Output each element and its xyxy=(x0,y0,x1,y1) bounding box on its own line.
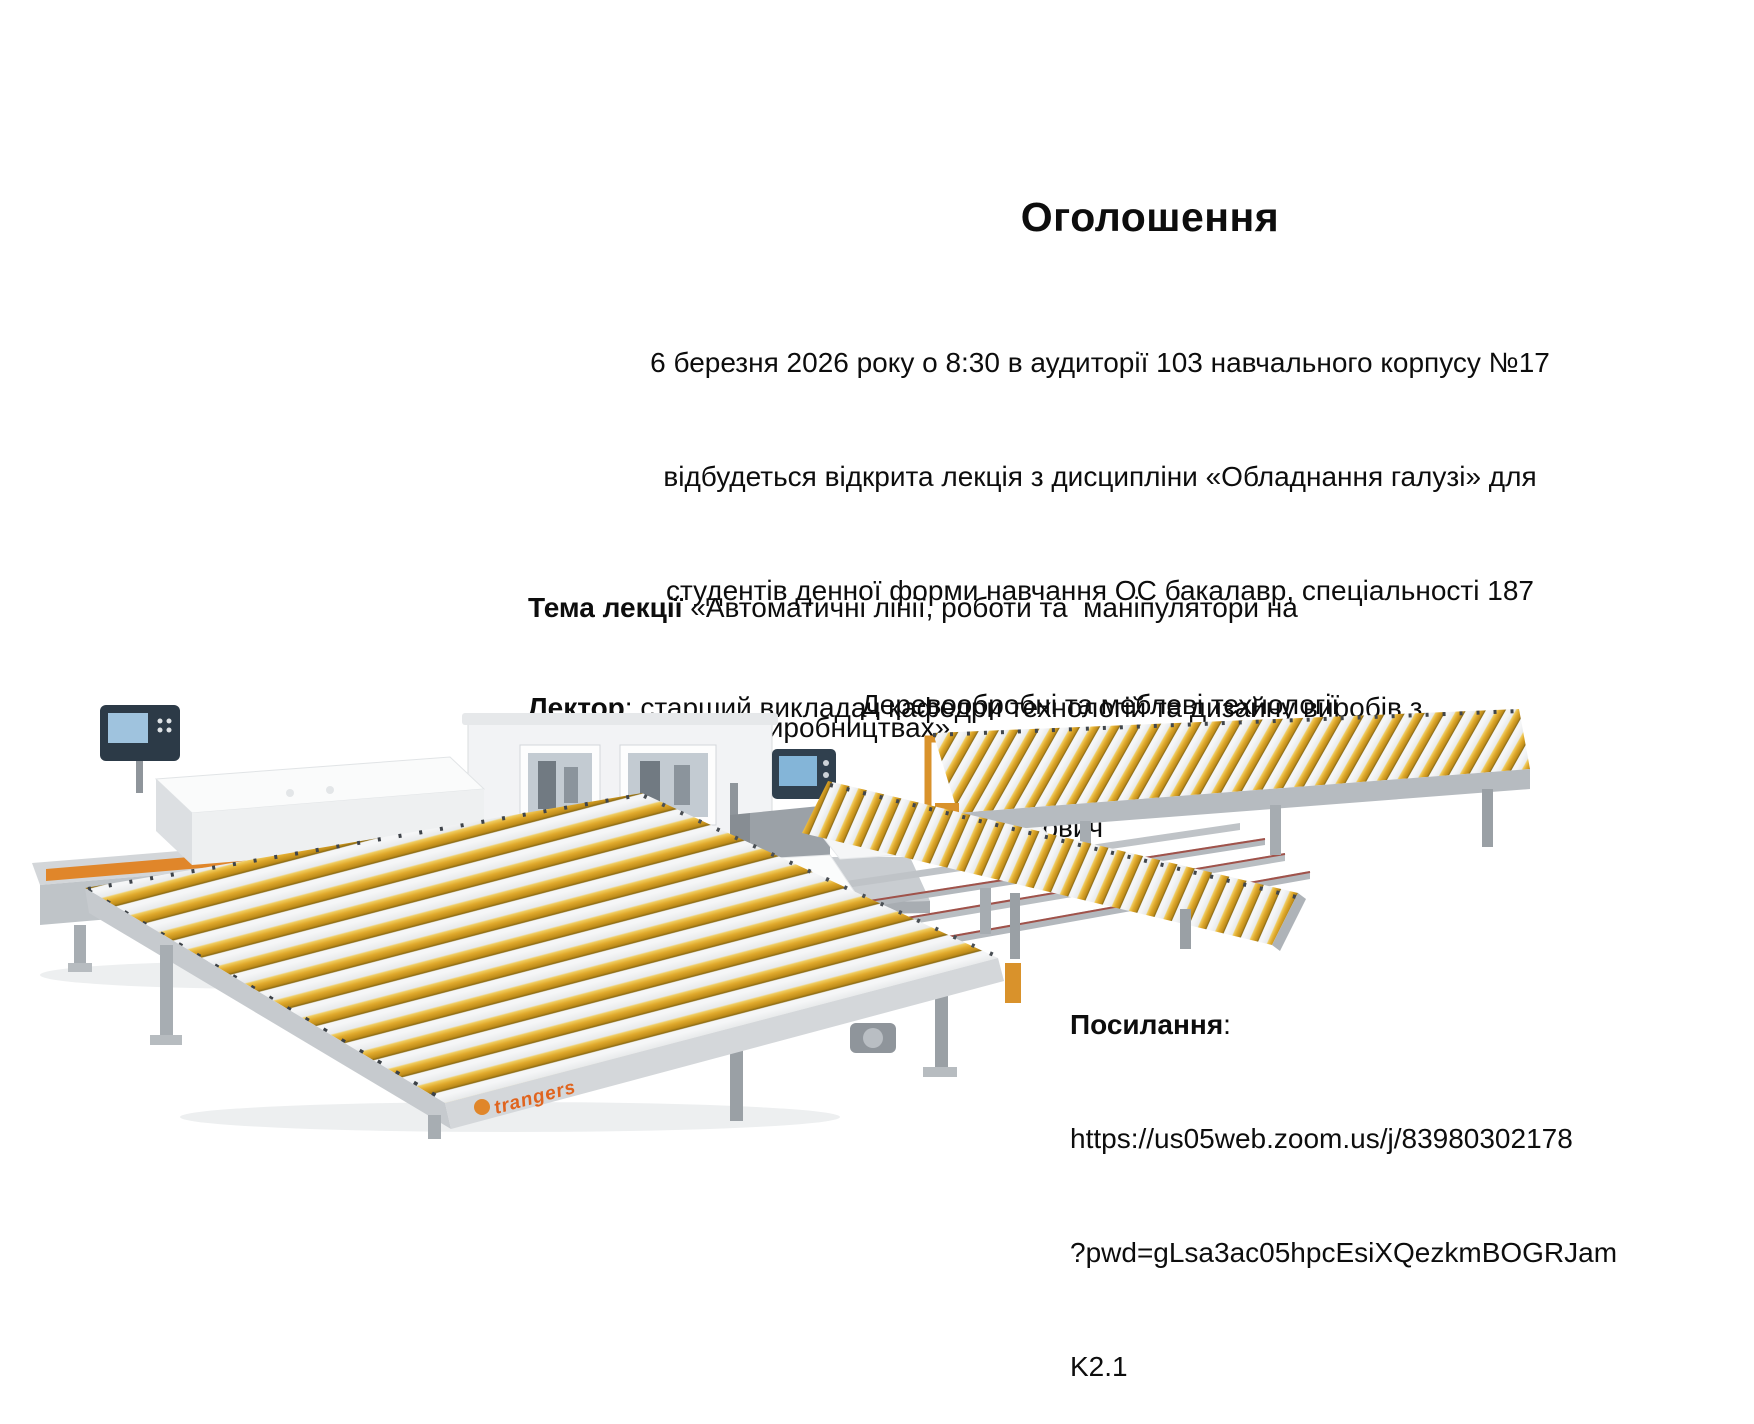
intro-line: 6 березня 2026 року о 8:30 в аудиторії 1… xyxy=(550,344,1650,382)
link-url-line[interactable]: https://us05web.zoom.us/j/83980302178 xyxy=(1070,1120,1630,1158)
intro-line: відбудеться відкрита лекція з дисципліни… xyxy=(550,458,1650,496)
zoom-link-block[interactable]: Посилання: https://us05web.zoom.us/j/839… xyxy=(1070,930,1630,1424)
link-url-line[interactable]: K2.1 xyxy=(1070,1348,1630,1386)
link-colon: : xyxy=(1223,1009,1231,1040)
brand-logo-icon xyxy=(474,1099,490,1115)
page-title: Оголошення xyxy=(700,194,1600,241)
link-label: Посилання xyxy=(1070,1009,1223,1040)
link-label-line: Посилання: xyxy=(1070,1006,1630,1044)
left-machine-control-panel xyxy=(100,705,180,761)
